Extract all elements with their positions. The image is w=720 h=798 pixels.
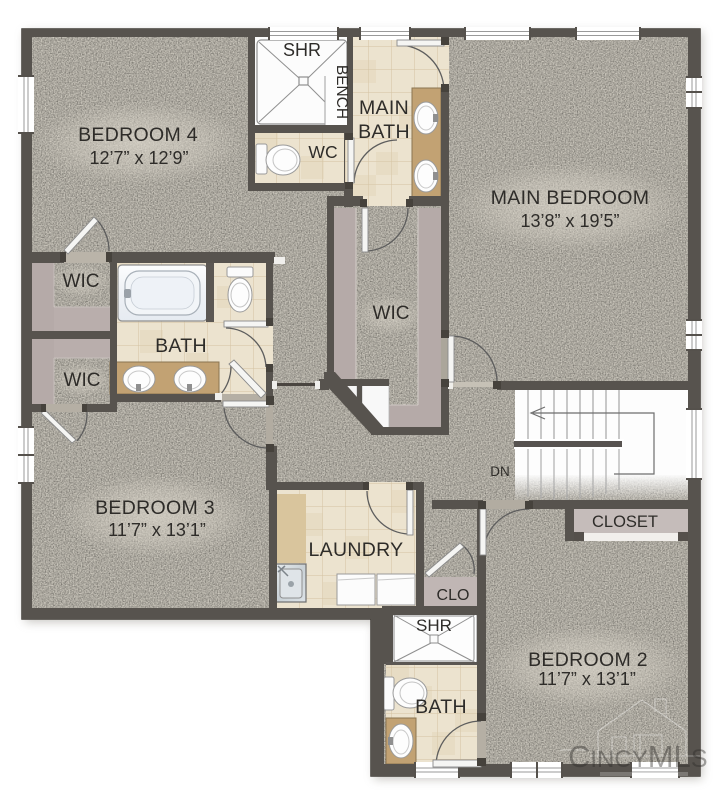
- svg-text:WC: WC: [308, 142, 337, 162]
- svg-text:BATH: BATH: [358, 121, 410, 143]
- svg-text:12’7” x 12’9”: 12’7” x 12’9”: [89, 148, 188, 168]
- svg-text:WIC: WIC: [63, 271, 100, 292]
- svg-text:LAUNDRY: LAUNDRY: [309, 539, 404, 561]
- svg-text:BEDROOM 4: BEDROOM 4: [78, 124, 198, 146]
- svg-text:MAIN BEDROOM: MAIN BEDROOM: [491, 187, 650, 209]
- svg-text:CLO: CLO: [437, 587, 470, 604]
- svg-text:11’7” x 13’1”: 11’7” x 13’1”: [538, 669, 636, 689]
- svg-text:DN: DN: [490, 464, 510, 479]
- svg-text:13’8” x 19’5”: 13’8” x 19’5”: [520, 211, 619, 231]
- svg-text:SHR: SHR: [416, 616, 452, 635]
- svg-text:WIC: WIC: [64, 370, 101, 391]
- svg-text:WIC: WIC: [373, 303, 410, 324]
- svg-text:MAIN: MAIN: [359, 97, 409, 119]
- svg-text:BEDROOM 3: BEDROOM 3: [95, 497, 215, 519]
- svg-text:BATH: BATH: [155, 335, 207, 357]
- svg-text:CLOSET: CLOSET: [592, 513, 658, 531]
- svg-text:BENCH: BENCH: [333, 65, 350, 119]
- svg-text:SHR: SHR: [283, 40, 321, 60]
- svg-text:BATH: BATH: [415, 696, 467, 718]
- svg-text:11’7” x 13’1”: 11’7” x 13’1”: [108, 520, 206, 540]
- svg-text:BEDROOM 2: BEDROOM 2: [528, 649, 648, 671]
